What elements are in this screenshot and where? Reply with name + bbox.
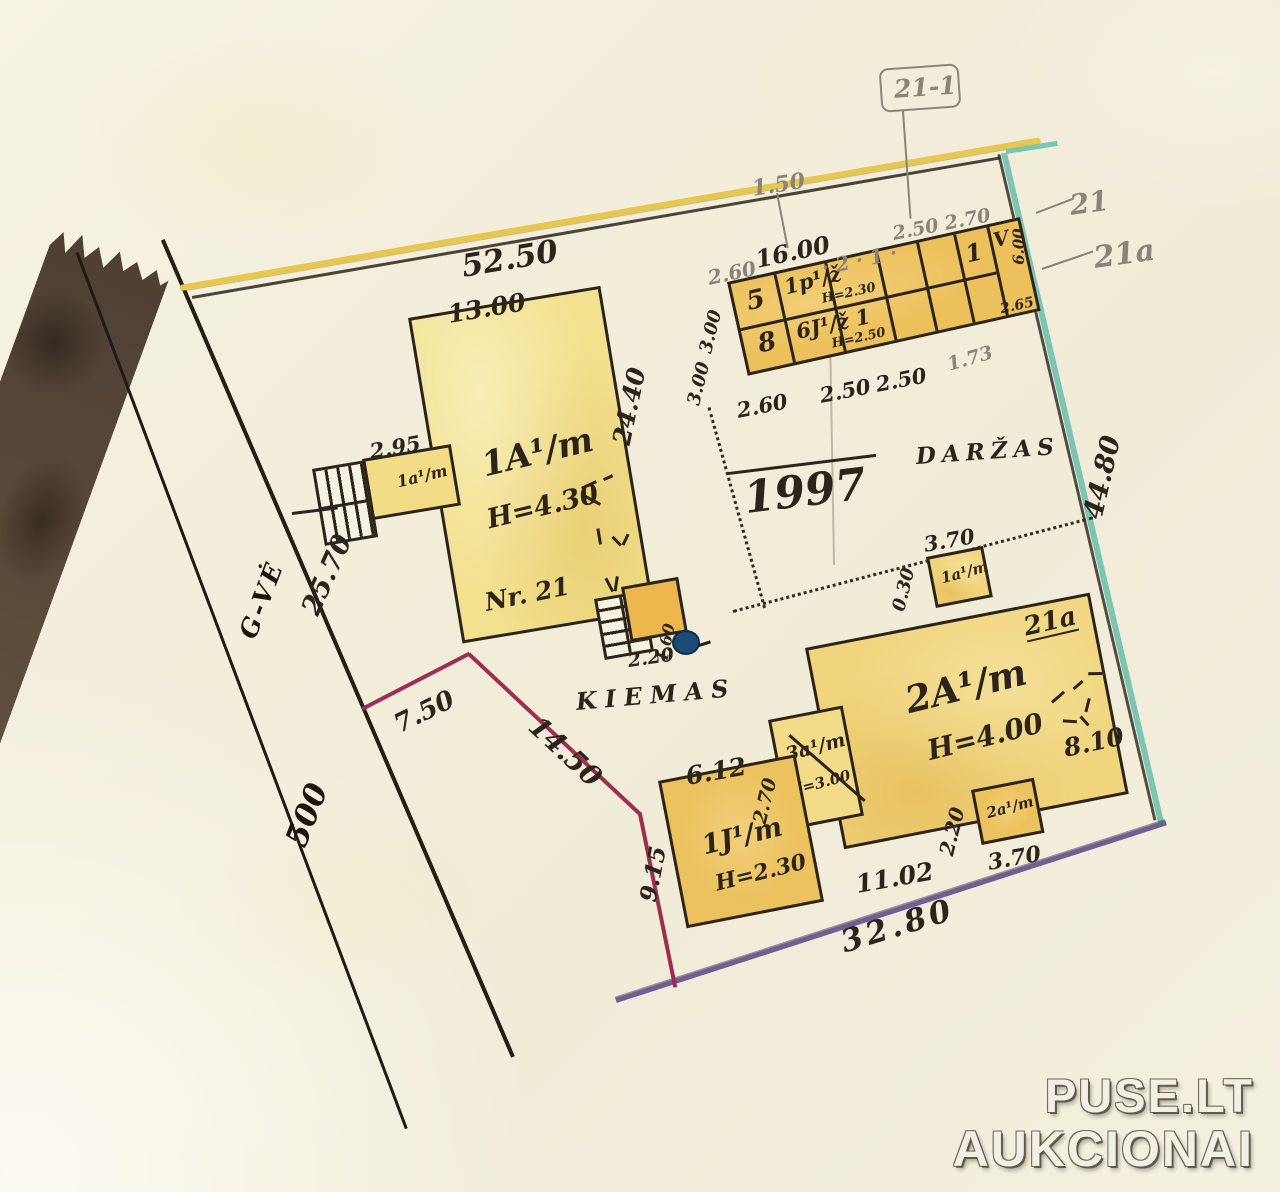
building-1A-annex-code: 1a¹/m <box>395 463 449 491</box>
street-strip <box>0 222 175 1159</box>
dim-b2-annex-top-depth: 0.30 <box>890 566 918 613</box>
shed-check-mark: V <box>991 227 1010 250</box>
building-2A-annex-top: 1a¹/m <box>926 546 993 608</box>
year-label: 1997 <box>727 454 883 523</box>
building-2A-annex-top-code: 1a¹/m <box>940 559 990 586</box>
house-number-21: 21 <box>1068 187 1110 220</box>
dim-b2-bottom: 11.02 <box>854 859 935 897</box>
well-tail-mark <box>699 640 711 646</box>
survey-dash-icon <box>603 474 613 481</box>
watermark-line2: AUKCIONAI <box>953 1122 1254 1176</box>
dim-south: 32.80 <box>837 894 958 958</box>
parcel-flag-label: 21-1 <box>893 72 957 101</box>
survey-dash-icon <box>1063 719 1077 723</box>
dim-red-a: 7.50 <box>390 687 458 738</box>
shed-cell-8: 8 <box>756 328 779 357</box>
parcel-flag: 21-1 <box>879 63 962 112</box>
watermark-line1: PUSE.LT <box>953 1071 1254 1122</box>
house21a-leader-line <box>1042 250 1094 269</box>
dim-sheds-below-a: 2.60 <box>735 390 789 420</box>
dim-red-c: 9.15 <box>637 844 670 903</box>
building-2A-id: 21a <box>1021 603 1079 642</box>
building-2A-height: H=4.00 <box>925 709 1046 765</box>
house-number-21a: 21a <box>1092 236 1157 274</box>
dim-north: 52.50 <box>459 236 560 283</box>
dim-east: 44.80 <box>1080 433 1125 521</box>
building-1A-number: Nr. 21 <box>483 573 572 615</box>
shed-cell-1: 1 <box>963 239 985 266</box>
street-number-label: 500 <box>282 780 334 852</box>
survey-dash-icon <box>1088 672 1102 675</box>
dim-sheds-right-gap: 1.73 <box>945 344 995 375</box>
shed-depth: 6.00 <box>1011 228 1026 265</box>
building-1A-code: 1A¹/m <box>478 423 596 483</box>
dim-north-gap: 1.50 <box>750 170 806 200</box>
survey-dash-icon <box>1051 691 1065 704</box>
building-2A-code: 2A¹/m <box>902 653 1031 719</box>
survey-dash-icon <box>596 528 602 544</box>
building-2A-annex-bottom: 2a¹/m <box>971 778 1045 845</box>
building-2A-annex-bottom-code: 2a¹/m <box>985 794 1035 821</box>
shed-cell-5: 5 <box>744 286 767 315</box>
survey-dash-icon <box>1079 715 1089 726</box>
dim-sheds-left-b: 3.00 <box>685 360 713 407</box>
building-1J-code: 1J¹/m <box>699 813 785 859</box>
site-plan-canvas: 1A¹/m H=4.30 Nr. 21 1a¹/m 21a 2A¹/m H=4.… <box>0 0 1280 1192</box>
dim-b1-porch-side: 1.60 <box>654 622 678 663</box>
building-1J-height: H=2.30 <box>713 851 808 895</box>
dim-sheds-left-a: 3.00 <box>697 308 725 355</box>
garden-label: DARŽAS <box>915 435 1060 468</box>
dim-b2-annex-bottom-width: 3.70 <box>986 843 1043 874</box>
dim-sheds-below-b: 2.50 <box>818 375 872 405</box>
survey-vee-icon <box>614 576 619 591</box>
survey-caret-icon <box>622 534 630 546</box>
dim-red-b: 14.50 <box>523 712 606 792</box>
street-name-label: G-VĖ <box>235 558 287 642</box>
watermark: PUSE.LT AUKCIONAI <box>953 1071 1254 1176</box>
pencil-crease-line <box>829 333 835 565</box>
survey-dash-icon <box>1084 698 1090 712</box>
survey-dash-icon <box>1073 680 1084 690</box>
survey-caret-icon <box>611 536 622 547</box>
dotted-boundary-horizontal <box>733 516 1094 613</box>
house21-leader-line <box>1036 198 1074 214</box>
yard-label: KIEMAS <box>575 676 737 714</box>
dim-sheds-below-c: 2.50 <box>874 364 928 394</box>
